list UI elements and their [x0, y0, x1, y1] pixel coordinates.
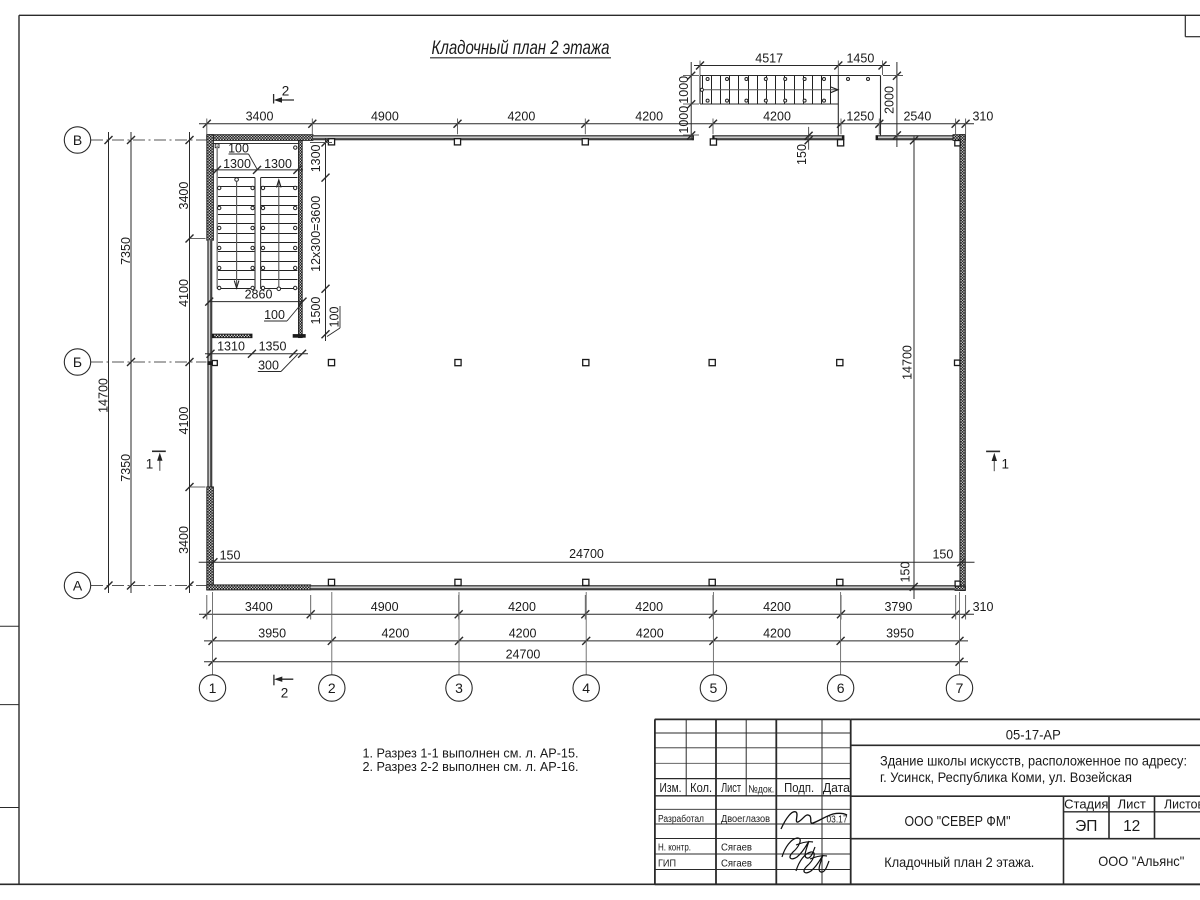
svg-text:2: 2	[282, 84, 290, 99]
svg-text:г. Усинск, Республика Коми, ул: г. Усинск, Республика Коми, ул. Возейска…	[880, 769, 1132, 785]
svg-text:4100: 4100	[177, 279, 191, 307]
svg-text:14700: 14700	[901, 345, 915, 380]
svg-text:№док.: №док.	[748, 783, 774, 795]
svg-text:2000: 2000	[883, 86, 897, 114]
svg-text:3950: 3950	[258, 627, 286, 641]
svg-text:7350: 7350	[119, 454, 133, 482]
svg-text:2: 2	[281, 686, 289, 701]
svg-text:Н. контр.: Н. контр.	[658, 842, 691, 853]
svg-text:4517: 4517	[755, 51, 783, 65]
svg-text:4200: 4200	[763, 600, 791, 614]
svg-text:1: 1	[146, 457, 154, 472]
svg-text:3400: 3400	[246, 109, 274, 123]
svg-text:1: 1	[1002, 457, 1010, 472]
svg-text:3950: 3950	[886, 627, 914, 641]
svg-text:5: 5	[710, 680, 718, 696]
svg-text:4200: 4200	[635, 109, 663, 123]
svg-text:14700: 14700	[97, 378, 111, 413]
svg-text:Лист: Лист	[1118, 797, 1146, 812]
svg-text:1300: 1300	[264, 157, 292, 171]
svg-text:2: 2	[328, 680, 336, 696]
svg-text:4200: 4200	[509, 627, 537, 641]
svg-text:4200: 4200	[636, 627, 664, 641]
svg-text:3400: 3400	[177, 526, 191, 554]
svg-text:2540: 2540	[903, 109, 931, 123]
svg-text:Сягаев: Сягаев	[721, 858, 752, 869]
svg-text:4200: 4200	[635, 600, 663, 614]
svg-text:05-17-АР: 05-17-АР	[1006, 726, 1061, 742]
svg-text:Двоеглазов: Двоеглазов	[721, 814, 770, 825]
svg-text:1: 1	[209, 680, 217, 696]
svg-text:4200: 4200	[381, 627, 409, 641]
svg-text:3: 3	[455, 680, 463, 696]
svg-text:В: В	[73, 132, 82, 148]
svg-text:1500: 1500	[309, 297, 323, 325]
svg-text:3400: 3400	[245, 600, 273, 614]
svg-text:Сягаев: Сягаев	[721, 842, 752, 853]
svg-text:4200: 4200	[763, 109, 791, 123]
svg-text:Б: Б	[73, 354, 82, 370]
svg-text:Кол.: Кол.	[690, 780, 712, 795]
svg-text:4200: 4200	[763, 627, 791, 641]
svg-text:1300: 1300	[223, 157, 251, 171]
svg-text:ООО "Альянс": ООО "Альянс"	[1098, 853, 1184, 869]
svg-text:7350: 7350	[119, 237, 133, 265]
svg-text:12х300=3600: 12х300=3600	[309, 196, 323, 272]
svg-text:4900: 4900	[371, 109, 399, 123]
svg-text:Лист: Лист	[721, 780, 741, 795]
svg-text:2. Разрез 2-2 выполнен см. л.: 2. Разрез 2-2 выполнен см. л. АР-16.	[363, 759, 579, 774]
svg-text:100: 100	[228, 141, 249, 155]
svg-text:Подп.: Подп.	[784, 780, 814, 795]
svg-text:Дата: Дата	[823, 780, 851, 795]
svg-text:150: 150	[899, 562, 913, 583]
svg-text:4100: 4100	[177, 407, 191, 435]
svg-text:4200: 4200	[507, 109, 535, 123]
svg-text:300: 300	[258, 358, 279, 372]
svg-text:Изм.: Изм.	[660, 780, 682, 795]
svg-text:12: 12	[1123, 818, 1140, 835]
svg-text:Листов: Листов	[1164, 797, 1200, 812]
svg-text:3400: 3400	[177, 182, 191, 210]
svg-text:А: А	[73, 577, 83, 593]
svg-text:7: 7	[956, 680, 964, 696]
svg-text:Здание школы искусств, располо: Здание школы искусств, расположенное по …	[880, 753, 1187, 769]
svg-text:Стадия: Стадия	[1064, 797, 1108, 812]
svg-text:3790: 3790	[884, 600, 912, 614]
svg-text:4900: 4900	[371, 600, 399, 614]
svg-text:150: 150	[932, 548, 953, 562]
svg-text:1250: 1250	[846, 109, 874, 123]
svg-text:2860: 2860	[245, 287, 273, 301]
svg-text:Разработал: Разработал	[658, 813, 704, 825]
svg-text:100: 100	[264, 308, 285, 322]
svg-text:150: 150	[795, 144, 809, 165]
svg-text:1000: 1000	[677, 106, 691, 134]
svg-text:310: 310	[972, 109, 993, 123]
svg-text:310: 310	[973, 600, 994, 614]
svg-text:100: 100	[328, 307, 342, 328]
svg-text:1300: 1300	[309, 144, 323, 172]
svg-text:6: 6	[837, 680, 845, 696]
svg-text:ЭП: ЭП	[1075, 818, 1097, 835]
svg-text:4200: 4200	[508, 600, 536, 614]
svg-text:Кладочный план 2 этажа.: Кладочный план 2 этажа.	[884, 854, 1034, 870]
svg-text:150: 150	[220, 549, 241, 563]
svg-text:24700: 24700	[506, 647, 541, 661]
svg-text:1450: 1450	[846, 51, 874, 65]
svg-text:1310: 1310	[217, 339, 245, 353]
svg-text:Кладочный план 2 этажа: Кладочный план 2 этажа	[432, 38, 610, 59]
svg-text:4: 4	[582, 680, 590, 696]
svg-text:1000: 1000	[677, 76, 691, 104]
svg-text:24700: 24700	[569, 547, 604, 561]
svg-text:1350: 1350	[259, 339, 287, 353]
svg-text:ГИП: ГИП	[658, 858, 676, 869]
svg-text:03.17: 03.17	[827, 814, 848, 825]
svg-text:ООО "СЕВЕР ФМ": ООО "СЕВЕР ФМ"	[905, 814, 1011, 830]
